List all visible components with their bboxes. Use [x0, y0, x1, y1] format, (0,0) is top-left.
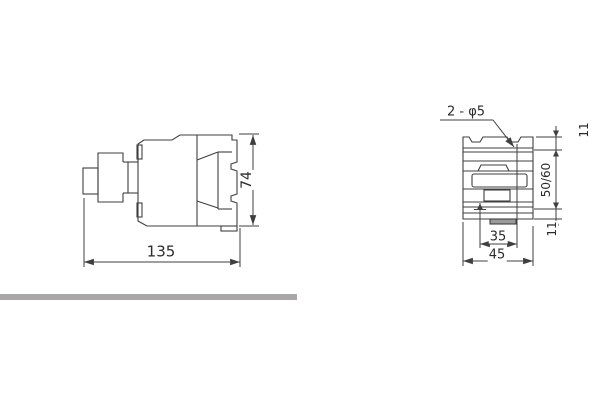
front-view-hole-callout-label: 2 - φ5 — [446, 106, 486, 119]
side-view-height-dimension-label: 74 — [240, 170, 254, 190]
side-view-length-dimension-label: 135 — [146, 245, 177, 260]
side-view-body — [138, 135, 237, 226]
front-view-bottom-offset-label: 11 — [546, 220, 558, 237]
drawing-linework — [0, 0, 600, 400]
front-view-tab — [478, 165, 509, 171]
front-view-nameplate — [472, 174, 527, 187]
hole-callout-leader — [493, 120, 514, 147]
side-view-step-block — [98, 153, 123, 202]
front-view-din-foot — [490, 219, 516, 224]
front-view-label-window — [484, 190, 510, 201]
page-divider-bar — [0, 294, 297, 300]
front-view-vertical-pitch-label: 50/60 — [540, 162, 552, 199]
side-view-end-block — [83, 168, 98, 194]
front-view-outline — [463, 137, 533, 224]
front-view-top-offset-label: 11 — [578, 121, 590, 138]
front-view-horizontal-pitch-label: 35 — [489, 231, 508, 244]
technical-drawing-page: 135 74 2 - φ5 11 50/60 11 35 45 — [0, 0, 600, 400]
side-view-foot — [221, 226, 237, 231]
side-view-outline — [83, 135, 237, 231]
front-view-width-dimension-label: 45 — [488, 249, 507, 262]
